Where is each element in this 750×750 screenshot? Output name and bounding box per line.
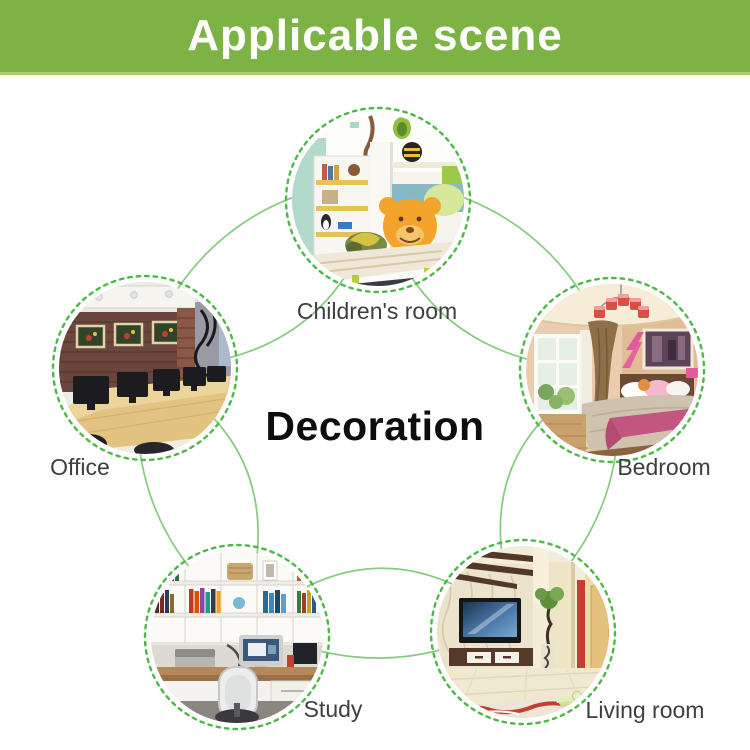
children-room-label: Children's room [297, 298, 457, 325]
scene-bedroom [517, 275, 707, 465]
scene-children-room [283, 105, 473, 295]
office-label: Office [50, 454, 110, 481]
children-room-dashed-ring [283, 105, 473, 295]
center-decoration-text: Decoration [265, 403, 484, 450]
office-dashed-ring [50, 273, 240, 463]
study-label: Study [304, 696, 363, 723]
scene-office [50, 273, 240, 463]
bedroom-dashed-ring [517, 275, 707, 465]
living-room-label: Living room [586, 697, 705, 724]
bedroom-label: Bedroom [617, 454, 710, 481]
